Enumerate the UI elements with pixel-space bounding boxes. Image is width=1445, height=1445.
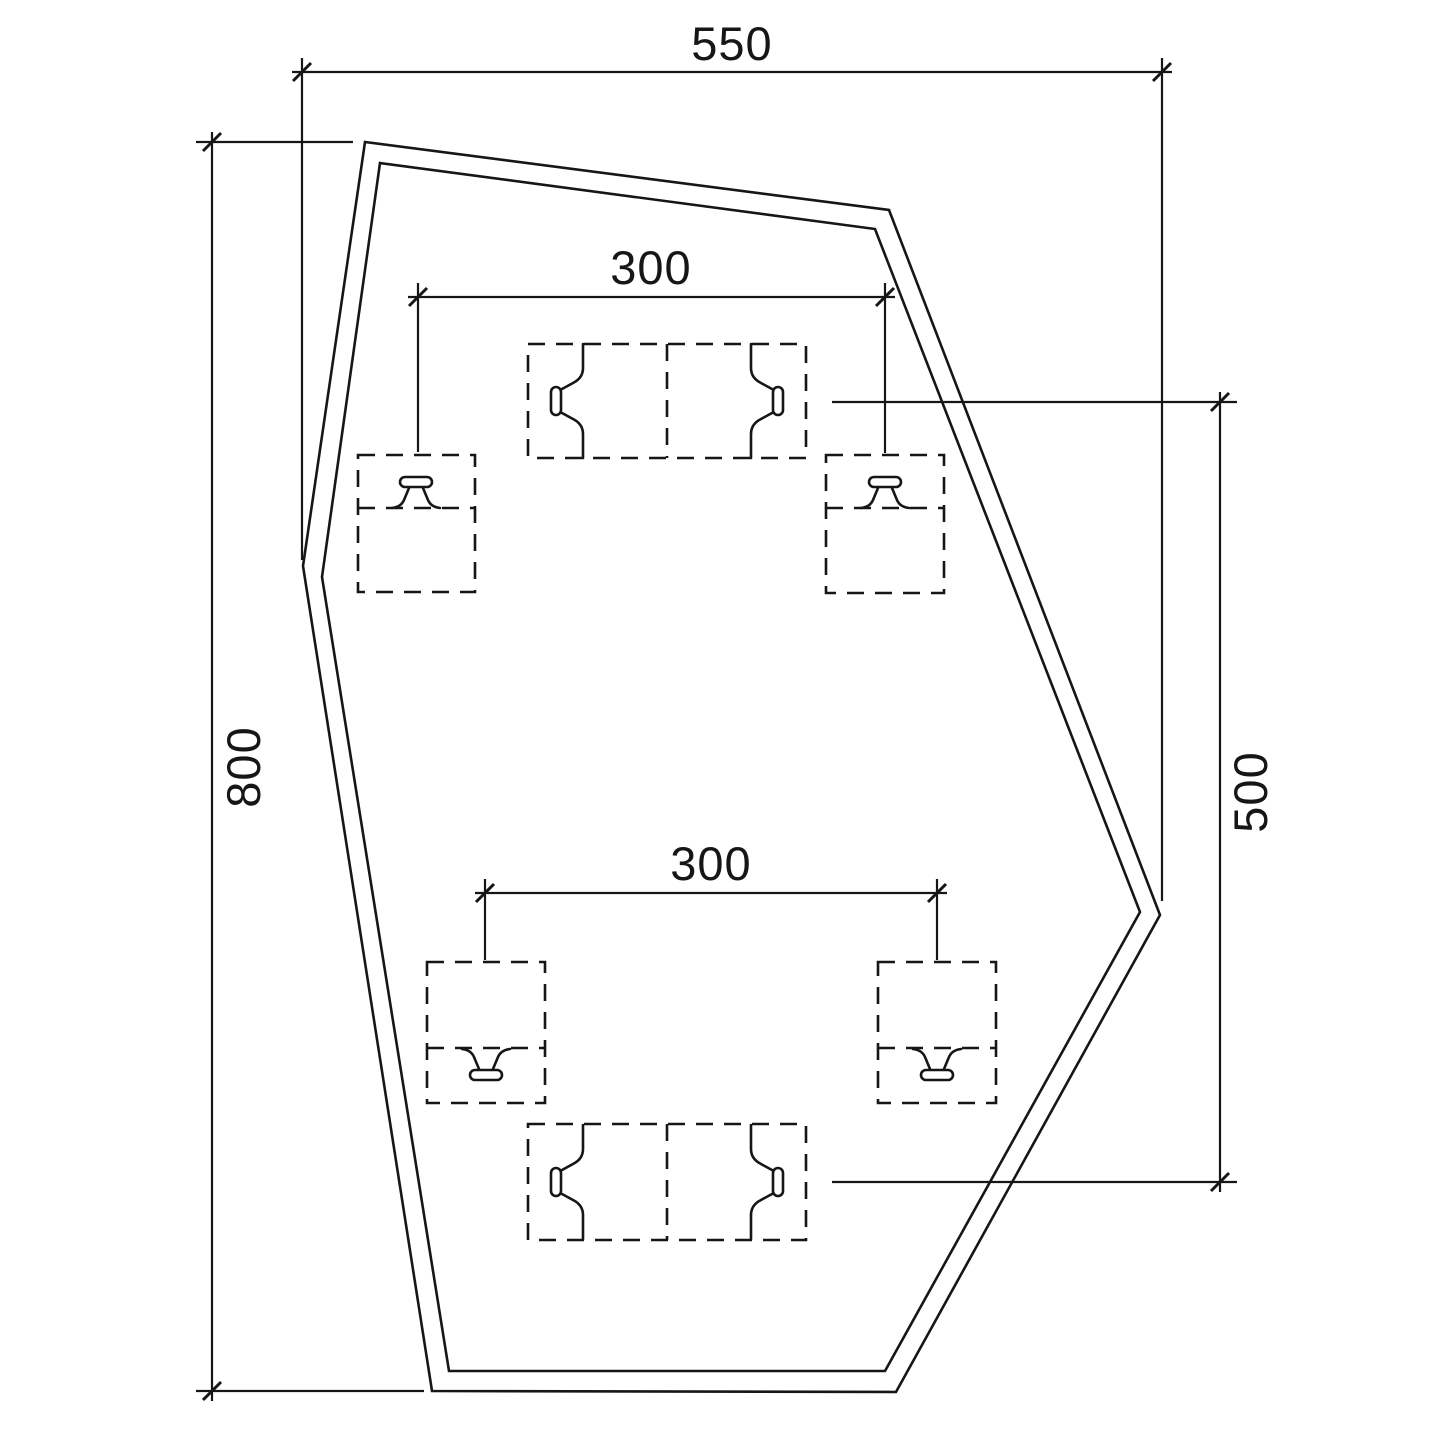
anchor-box-lower-right	[878, 962, 996, 1103]
dimension-lower-spacing: 300	[475, 837, 947, 960]
dimension-label-right: 500	[1224, 751, 1277, 832]
t-profile-icon	[751, 344, 783, 458]
track-box-top	[528, 344, 806, 458]
t-profile-icon	[913, 1049, 961, 1080]
dimension-upper-spacing: 300	[408, 241, 895, 453]
plate-outline-outer	[303, 142, 1160, 1392]
t-profile-icon	[861, 477, 909, 508]
cad-drawing: 550 800 500 300 300	[0, 0, 1445, 1445]
t-profile-icon	[392, 477, 440, 508]
plate-shape	[303, 142, 1160, 1392]
anchor-box-outline	[878, 962, 996, 1103]
dimension-label-top: 550	[691, 17, 772, 70]
t-profile-icon	[551, 1125, 583, 1239]
t-profile-icon	[551, 344, 583, 458]
dimension-label-left: 800	[217, 726, 270, 807]
anchor-box-outline	[358, 455, 475, 592]
cad-drawing-canvas: 550 800 500 300 300	[0, 0, 1445, 1445]
anchor-box-outline	[427, 962, 545, 1103]
anchor-box-upper-left	[358, 455, 475, 592]
dimension-right-height: 500	[832, 392, 1277, 1192]
t-profile-icon	[751, 1125, 783, 1239]
anchor-box-upper-right	[826, 455, 944, 593]
dimension-label-lower: 300	[670, 837, 751, 890]
dimension-label-upper: 300	[610, 241, 691, 294]
anchor-box-lower-left	[427, 962, 545, 1103]
dimension-left-height: 800	[196, 132, 424, 1401]
track-box-bottom	[528, 1124, 806, 1240]
t-profile-icon	[462, 1049, 510, 1080]
